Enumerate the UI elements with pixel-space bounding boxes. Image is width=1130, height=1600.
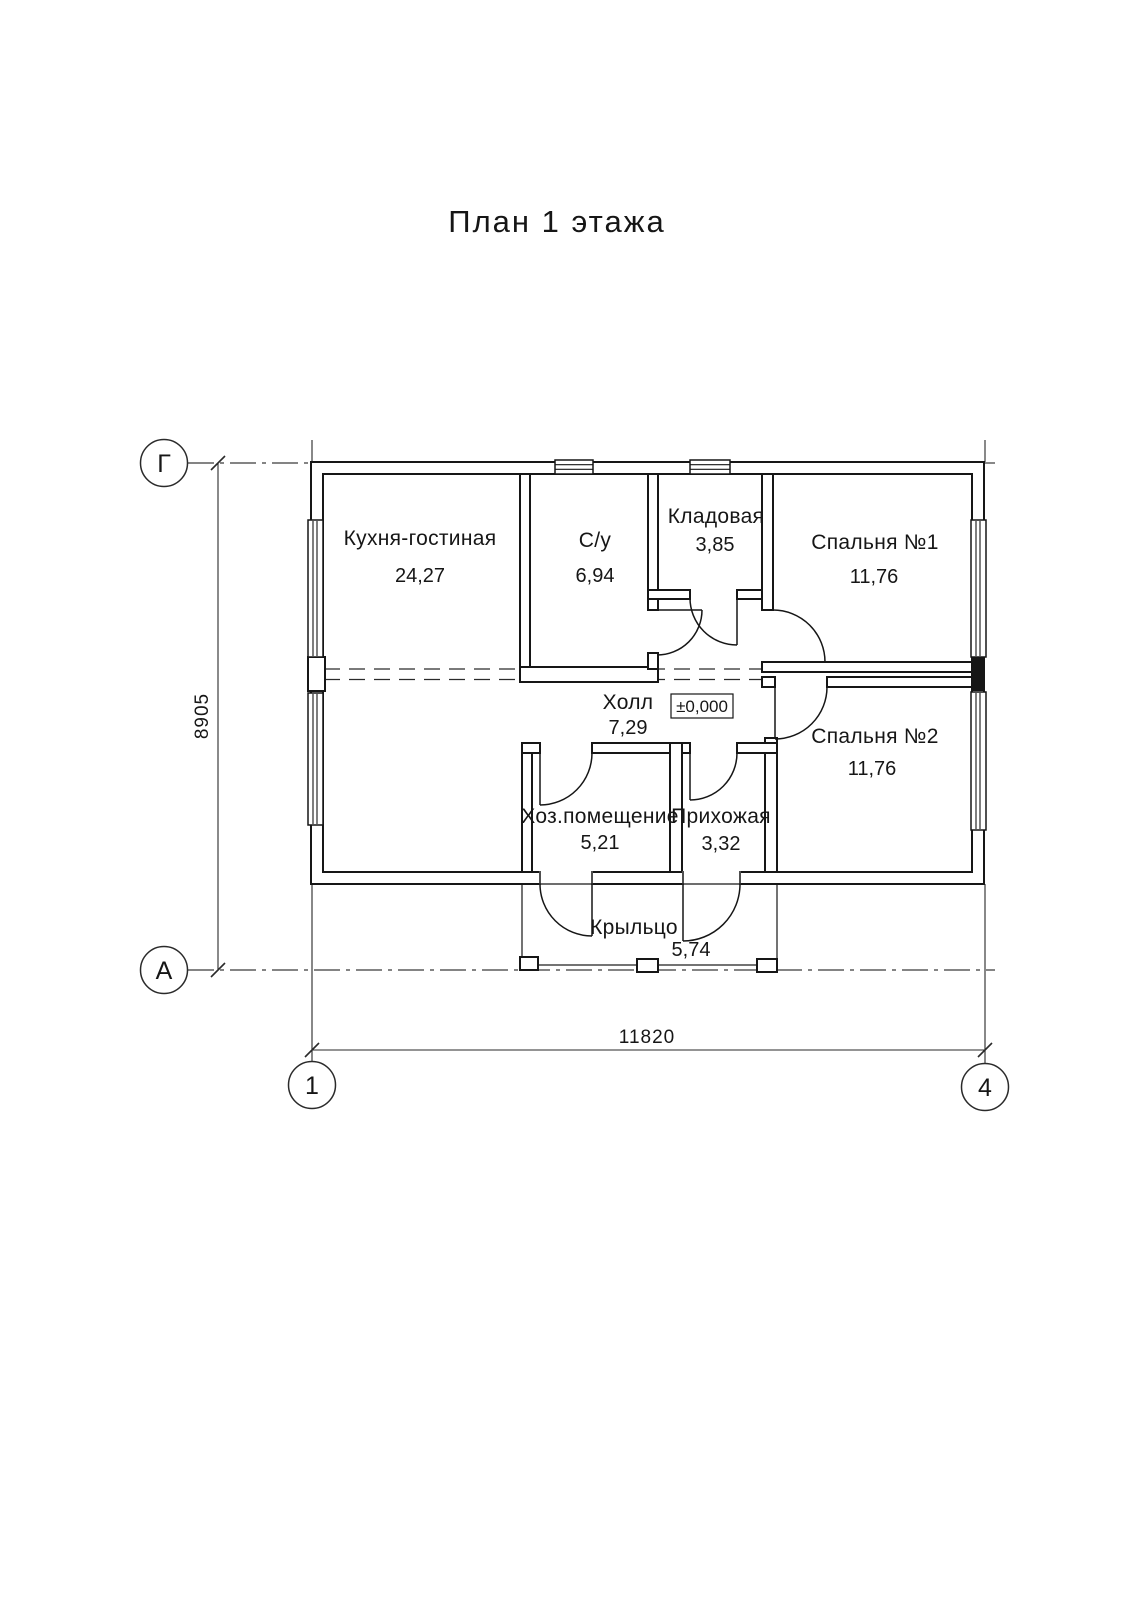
svg-text:Спальня №1: Спальня №1 xyxy=(811,531,938,554)
page-title: План 1 этажа xyxy=(448,204,665,239)
axis-label-G: Г xyxy=(157,450,171,478)
svg-text:5,74: 5,74 xyxy=(672,939,711,961)
axis-label-1: 1 xyxy=(305,1072,319,1100)
room-label-bedroom-2: Спальня №2 11,76 xyxy=(811,725,938,780)
wall-storage-bedroom1 xyxy=(762,474,773,610)
level-mark: ±0,000 xyxy=(671,694,733,718)
room-label-storage: Кладовая 3,85 xyxy=(668,505,764,556)
window-left-upper xyxy=(308,520,323,657)
window-top-bathroom xyxy=(555,460,593,474)
wall-bathroom-right-lower xyxy=(648,653,658,669)
axis-label-A: А xyxy=(156,957,173,985)
svg-text:Кладовая: Кладовая xyxy=(668,505,764,528)
porch-column-left xyxy=(520,957,538,970)
window-right-bedroom1 xyxy=(971,520,986,657)
level-mark-value: ±0,000 xyxy=(676,697,728,716)
window-right-bedroom2 xyxy=(971,692,986,830)
dimension-horizontal: 11820 xyxy=(305,1027,992,1057)
svg-text:6,94: 6,94 xyxy=(576,565,615,587)
svg-text:3,85: 3,85 xyxy=(696,534,735,556)
porch-column-middle xyxy=(637,959,658,972)
wall-bedroom2-top xyxy=(827,677,984,687)
door-utility xyxy=(540,753,592,805)
svg-text:Крыльцо: Крыльцо xyxy=(590,916,678,939)
wall-storage-bottom-right xyxy=(737,590,763,599)
window-left-lower xyxy=(308,693,323,825)
wall-kitchen-bathroom xyxy=(520,474,530,682)
svg-text:Кухня-гостиная: Кухня-гостиная xyxy=(344,527,497,550)
pier-left-wall xyxy=(308,657,325,691)
svg-text:Прихожая: Прихожая xyxy=(671,805,771,828)
svg-text:С/у: С/у xyxy=(579,529,612,552)
pier-right-wall xyxy=(971,657,984,691)
svg-text:Спальня №2: Спальня №2 xyxy=(811,725,938,748)
door-bathroom xyxy=(653,610,702,655)
door-porch-right xyxy=(683,884,740,941)
door-entry-inner xyxy=(690,753,737,800)
svg-text:5,21: 5,21 xyxy=(581,832,620,854)
svg-text:Холл: Холл xyxy=(603,691,654,714)
wall-bedroom1-bottom xyxy=(762,662,984,672)
svg-text:11,76: 11,76 xyxy=(848,758,897,780)
doors xyxy=(540,598,827,941)
dimension-height-label: 8905 xyxy=(192,693,213,739)
wall-storage-bottom-left xyxy=(648,590,690,599)
wall-entry-top-right xyxy=(737,743,777,753)
room-labels: Кухня-гостиная 24,27 С/у 6,94 Кладовая 3… xyxy=(344,505,939,961)
floor-plan-drawing: 8905 11820 Г А 1 4 ±0,000 План 1 этажа К… xyxy=(0,0,1130,1600)
porch-column-right xyxy=(757,959,777,972)
svg-text:3,32: 3,32 xyxy=(702,833,741,855)
door-bedroom1 xyxy=(773,610,825,662)
window-top-storage xyxy=(690,460,730,474)
dimension-vertical: 8905 xyxy=(192,456,225,977)
wall-bedroom2-top-stub xyxy=(762,677,775,687)
wall-utility-top-stub xyxy=(522,743,540,753)
dimension-width-label: 11820 xyxy=(619,1027,675,1048)
svg-text:Хоз.помещение: Хоз.помещение xyxy=(521,805,678,828)
floor-plan-page: 8905 11820 Г А 1 4 ±0,000 План 1 этажа К… xyxy=(0,0,1130,1600)
room-label-bedroom-1: Спальня №1 11,76 xyxy=(811,531,938,588)
svg-text:7,29: 7,29 xyxy=(609,717,648,739)
room-label-porch: Крыльцо 5,74 xyxy=(590,916,710,961)
wall-bathroom-bottom xyxy=(520,667,658,682)
svg-text:24,27: 24,27 xyxy=(395,565,445,587)
svg-text:11,76: 11,76 xyxy=(850,566,899,588)
room-label-kitchen-living: Кухня-гостиная 24,27 xyxy=(344,527,497,587)
room-label-bathroom: С/у 6,94 xyxy=(576,529,615,587)
room-label-utility: Хоз.помещение 5,21 xyxy=(521,805,678,854)
room-label-entry: Прихожая 3,32 xyxy=(671,805,771,855)
door-porch-left xyxy=(540,884,592,936)
room-label-hall: Холл 7,29 xyxy=(603,691,654,739)
axis-label-4: 4 xyxy=(978,1074,992,1102)
door-storage xyxy=(690,598,737,645)
